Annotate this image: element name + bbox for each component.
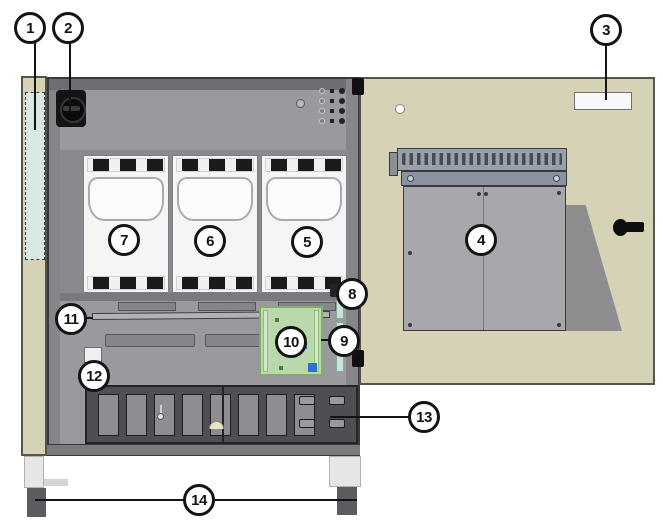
module-vent-top [87, 158, 165, 172]
shelf-bracket [118, 302, 176, 311]
power-module-6 [172, 155, 258, 293]
slot-latch-icon [157, 413, 164, 420]
connector-block [299, 396, 345, 428]
power-module-5 [261, 155, 347, 293]
callout-2: 2 [52, 12, 84, 44]
callout-12: 12 [78, 360, 110, 392]
indicator-led-grid [318, 88, 345, 124]
terminal-slot-row [98, 394, 315, 436]
switch-handle-icon [63, 106, 80, 111]
leader-line-13 [330, 416, 410, 418]
callout-11: 11 [55, 303, 87, 335]
callout-6: 6 [194, 225, 226, 257]
callout-3: 3 [590, 14, 622, 46]
pcb-chip-icon [308, 363, 317, 372]
module-shelf-edge [60, 293, 346, 301]
callout-5: 5 [291, 226, 323, 258]
connection-terminal-panel [85, 385, 358, 444]
slot-grommet-icon [209, 421, 224, 429]
module-handle [177, 177, 253, 221]
callout-7: 7 [108, 224, 140, 256]
module-handle [88, 177, 164, 221]
leader-line-1 [34, 42, 36, 130]
callout-13: 13 [408, 401, 440, 433]
callout-1: 1 [14, 12, 46, 44]
cabinet-top-band [49, 79, 358, 90]
module-vent-top [176, 158, 254, 172]
callout-4: 4 [465, 224, 497, 256]
module-vent-bottom [87, 276, 165, 290]
module-vent-top [265, 158, 343, 172]
rotary-switch [56, 90, 86, 127]
leader-line-3 [605, 45, 607, 100]
stand-crossbar [44, 479, 68, 486]
door-mounted-panel [403, 186, 566, 331]
callout-9: 9 [328, 325, 360, 357]
door-nameplate [574, 92, 632, 110]
callout-10: 10 [275, 326, 307, 358]
callout-14: 14 [183, 484, 215, 516]
leader-line-11 [86, 317, 93, 319]
mount-rail [401, 171, 567, 186]
leader-line-2 [69, 42, 71, 112]
cabinet-door [359, 77, 655, 385]
cabinet-bottom-band [47, 444, 360, 455]
stand-leg-right [329, 456, 361, 487]
cabinet-callout-diagram: 1 2 3 4 5 6 7 8 9 10 11 12 13 14 [0, 0, 663, 532]
bracket-vent-slots [402, 153, 562, 165]
door-handle-icon [626, 222, 644, 232]
module-handle [266, 177, 342, 221]
stand-leg-left [24, 456, 44, 488]
door-hole-icon [395, 104, 405, 114]
panel-screw-icon [296, 99, 305, 108]
vented-bracket [397, 148, 567, 171]
cabinet-left-frame [49, 90, 60, 454]
recessed-slot [105, 334, 195, 347]
door-hinge-icon [352, 78, 364, 95]
callout-8: 8 [336, 278, 368, 310]
shelf-bracket [198, 302, 256, 311]
foot-left [27, 488, 46, 517]
foot-right [337, 487, 357, 515]
module-vent-bottom [176, 276, 254, 290]
